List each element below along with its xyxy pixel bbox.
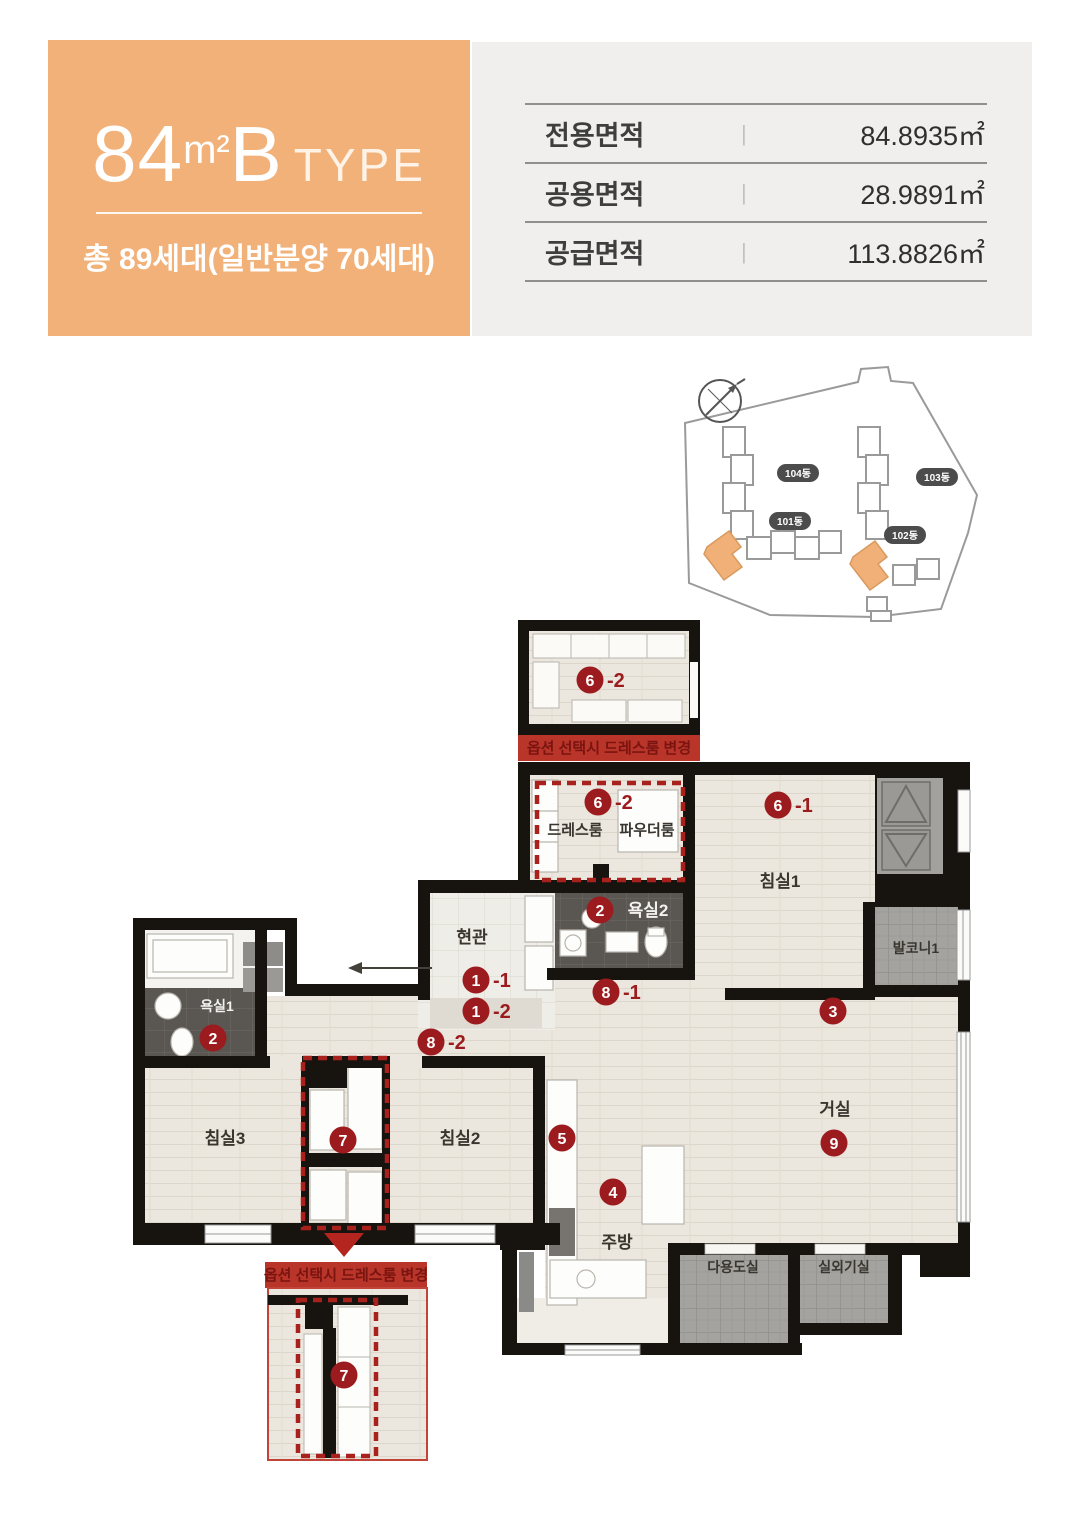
marker-7: 7 <box>330 1127 357 1154</box>
marker-3: 3 <box>820 998 847 1025</box>
svg-text:3: 3 <box>829 1004 838 1021</box>
building-label: 103동 <box>924 472 950 484</box>
svg-text:7: 7 <box>339 1133 348 1150</box>
svg-text:4: 4 <box>609 1185 618 1202</box>
row-label: 전용면적 <box>525 114 741 153</box>
marker-5: 5 <box>549 1125 576 1152</box>
room-label-bedroom1: 침실1 <box>760 871 801 891</box>
building-label: 104동 <box>785 468 811 480</box>
svg-text:8: 8 <box>602 985 611 1002</box>
svg-text:-2: -2 <box>448 1032 466 1054</box>
option-note-text: 옵션 선택시 드레스룸 변경 <box>264 1266 428 1284</box>
room-label-entrance: 현관 <box>456 928 488 947</box>
svg-text:6: 6 <box>774 798 783 815</box>
svg-text:-2: -2 <box>607 670 625 692</box>
room-label-dressroom: 드레스룸 <box>547 822 602 839</box>
svg-text:5: 5 <box>558 1131 567 1148</box>
area-number: 84 <box>92 109 183 198</box>
room-label-bedroom3: 침실3 <box>205 1128 246 1148</box>
room-label-balcony1: 발코니1 <box>893 940 940 956</box>
brochure-page: 84m²BTYPE 총 89세대(일반분양 70세대) 전용면적 | 84.89… <box>0 0 1080 1538</box>
svg-text:8: 8 <box>427 1035 436 1052</box>
room-label-outdoor-unit: 실외기실 <box>818 1259 870 1275</box>
site-plan: 104동 103동 101동 102동 <box>675 365 990 623</box>
option-box-dressroom-top: 6 -2 옵션 선택시 드레스룸 변경 <box>518 620 700 785</box>
row-value: 28.9891㎡ <box>771 173 987 212</box>
row-label: 공급면적 <box>525 232 741 271</box>
svg-text:1: 1 <box>472 973 481 990</box>
svg-text:2: 2 <box>209 1031 218 1048</box>
building-label: 102동 <box>892 530 918 542</box>
unit-type-card: 84m²BTYPE 총 89세대(일반분양 70세대) <box>48 40 470 336</box>
svg-text:6: 6 <box>586 673 595 690</box>
option-note-text: 옵션 선택시 드레스룸 변경 <box>527 739 691 757</box>
svg-text:-2: -2 <box>615 792 633 814</box>
area-unit: m² <box>183 128 230 172</box>
svg-text:6: 6 <box>594 795 603 812</box>
svg-text:-2: -2 <box>493 1001 511 1023</box>
svg-text:-1: -1 <box>493 970 511 992</box>
row-separator: | <box>741 180 771 206</box>
row-value: 113.8826㎡ <box>771 232 987 271</box>
elevator-shaft <box>875 762 970 907</box>
svg-text:-1: -1 <box>795 795 813 817</box>
option-box-dressroom-bottom: 옵션 선택시 드레스룸 변경 7 <box>264 1262 428 1460</box>
row-separator: | <box>741 121 771 147</box>
title-divider <box>96 212 422 214</box>
marker-9: 9 <box>821 1130 848 1157</box>
row-separator: | <box>741 239 771 265</box>
marker-2-bath2: 2 <box>587 897 614 924</box>
table-row: 공급면적 | 113.8826㎡ <box>525 221 987 282</box>
marker-7-option: 7 <box>331 1362 358 1389</box>
room-label-bedroom2: 침실2 <box>440 1128 481 1148</box>
row-label: 공용면적 <box>525 173 741 212</box>
building-label: 101동 <box>777 516 803 528</box>
area-info-panel: 전용면적 | 84.8935㎡ 공용면적 | 28.9891㎡ 공급면적 | 1… <box>472 42 1032 336</box>
room-label-powder: 파우더룸 <box>619 822 674 839</box>
room-label-bath1: 욕실1 <box>200 998 234 1014</box>
room-label-kitchen: 주방 <box>601 1233 633 1252</box>
row-value: 84.8935㎡ <box>771 114 987 153</box>
unit-type-title: 84m²BTYPE <box>48 108 470 200</box>
household-subtitle: 총 89세대(일반분양 70세대) <box>48 234 470 278</box>
area-table: 전용면적 | 84.8935㎡ 공용면적 | 28.9891㎡ 공급면적 | 1… <box>525 103 987 282</box>
room-label-living: 거실 <box>819 1100 850 1119</box>
type-word: TYPE <box>294 139 426 191</box>
type-letter: B <box>230 110 282 198</box>
svg-text:2: 2 <box>596 903 605 920</box>
svg-text:-1: -1 <box>623 982 641 1004</box>
marker-4: 4 <box>600 1179 627 1206</box>
table-row: 공용면적 | 28.9891㎡ <box>525 162 987 221</box>
room-label-bath2: 욕실2 <box>628 901 669 920</box>
floor-plan: 6 -2 옵션 선택시 드레스룸 변경 <box>120 612 990 1538</box>
table-row: 전용면적 | 84.8935㎡ <box>525 103 987 162</box>
room-label-utility: 다용도실 <box>707 1259 759 1275</box>
svg-text:1: 1 <box>472 1004 481 1021</box>
svg-text:7: 7 <box>340 1368 349 1385</box>
svg-text:9: 9 <box>830 1136 839 1153</box>
marker-2-bath1: 2 <box>200 1025 227 1052</box>
